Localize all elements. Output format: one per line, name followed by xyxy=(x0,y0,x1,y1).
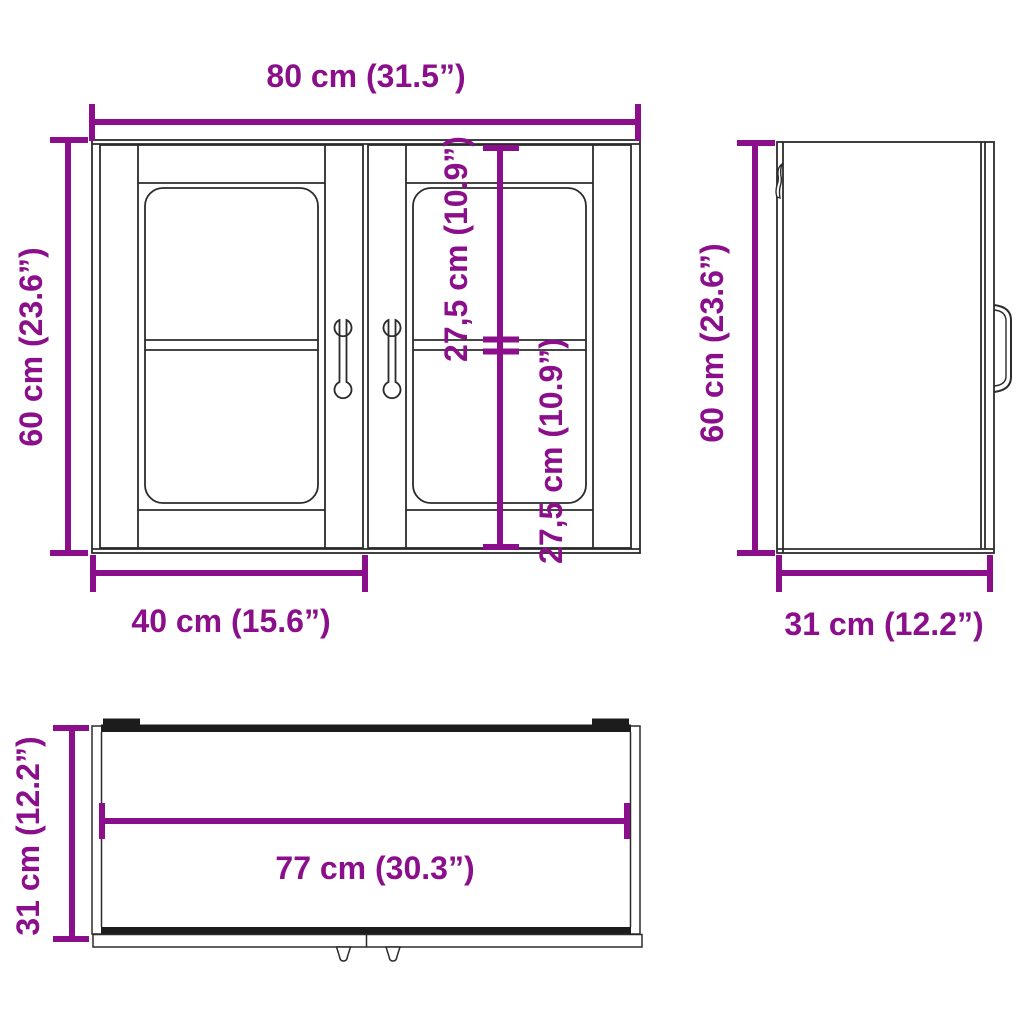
side-handle xyxy=(994,305,1011,392)
side-view-drawing xyxy=(776,142,1011,553)
side-depth-dimension-label: 31 cm (12.2”) xyxy=(784,608,983,640)
top-depth-dimension-label: 31 cm (12.2”) xyxy=(12,736,44,935)
door-width-dimension-label: 40 cm (15.6”) xyxy=(131,605,330,637)
right-door-handle xyxy=(383,320,400,398)
lower-compartment-dimension-label: 27,5 cm (10.9”) xyxy=(535,338,567,564)
left-bracket xyxy=(103,719,140,725)
cabinet-line-art xyxy=(0,0,1024,1024)
left-knob xyxy=(337,947,351,961)
top-view-drawing xyxy=(92,719,642,962)
right-bracket xyxy=(592,719,629,725)
left-door-handle xyxy=(335,320,352,398)
top-inner-width-dimension-label: 77 cm (30.3”) xyxy=(275,852,474,884)
right-knob xyxy=(386,947,400,961)
dimension-diagram: 80 cm (31.5”) 60 cm (23.6”) 27,5 cm (10.… xyxy=(0,0,1024,1024)
front-width-dimension-label: 80 cm (31.5”) xyxy=(266,60,465,92)
side-height-dimension-label: 60 cm (23.6”) xyxy=(696,243,728,442)
dimension-lines-top xyxy=(53,728,627,939)
dimension-lines-side xyxy=(737,143,990,592)
upper-compartment-dimension-label: 27,5 cm (10.9”) xyxy=(440,136,472,362)
front-height-dimension-label: 60 cm (23.6”) xyxy=(15,247,47,446)
